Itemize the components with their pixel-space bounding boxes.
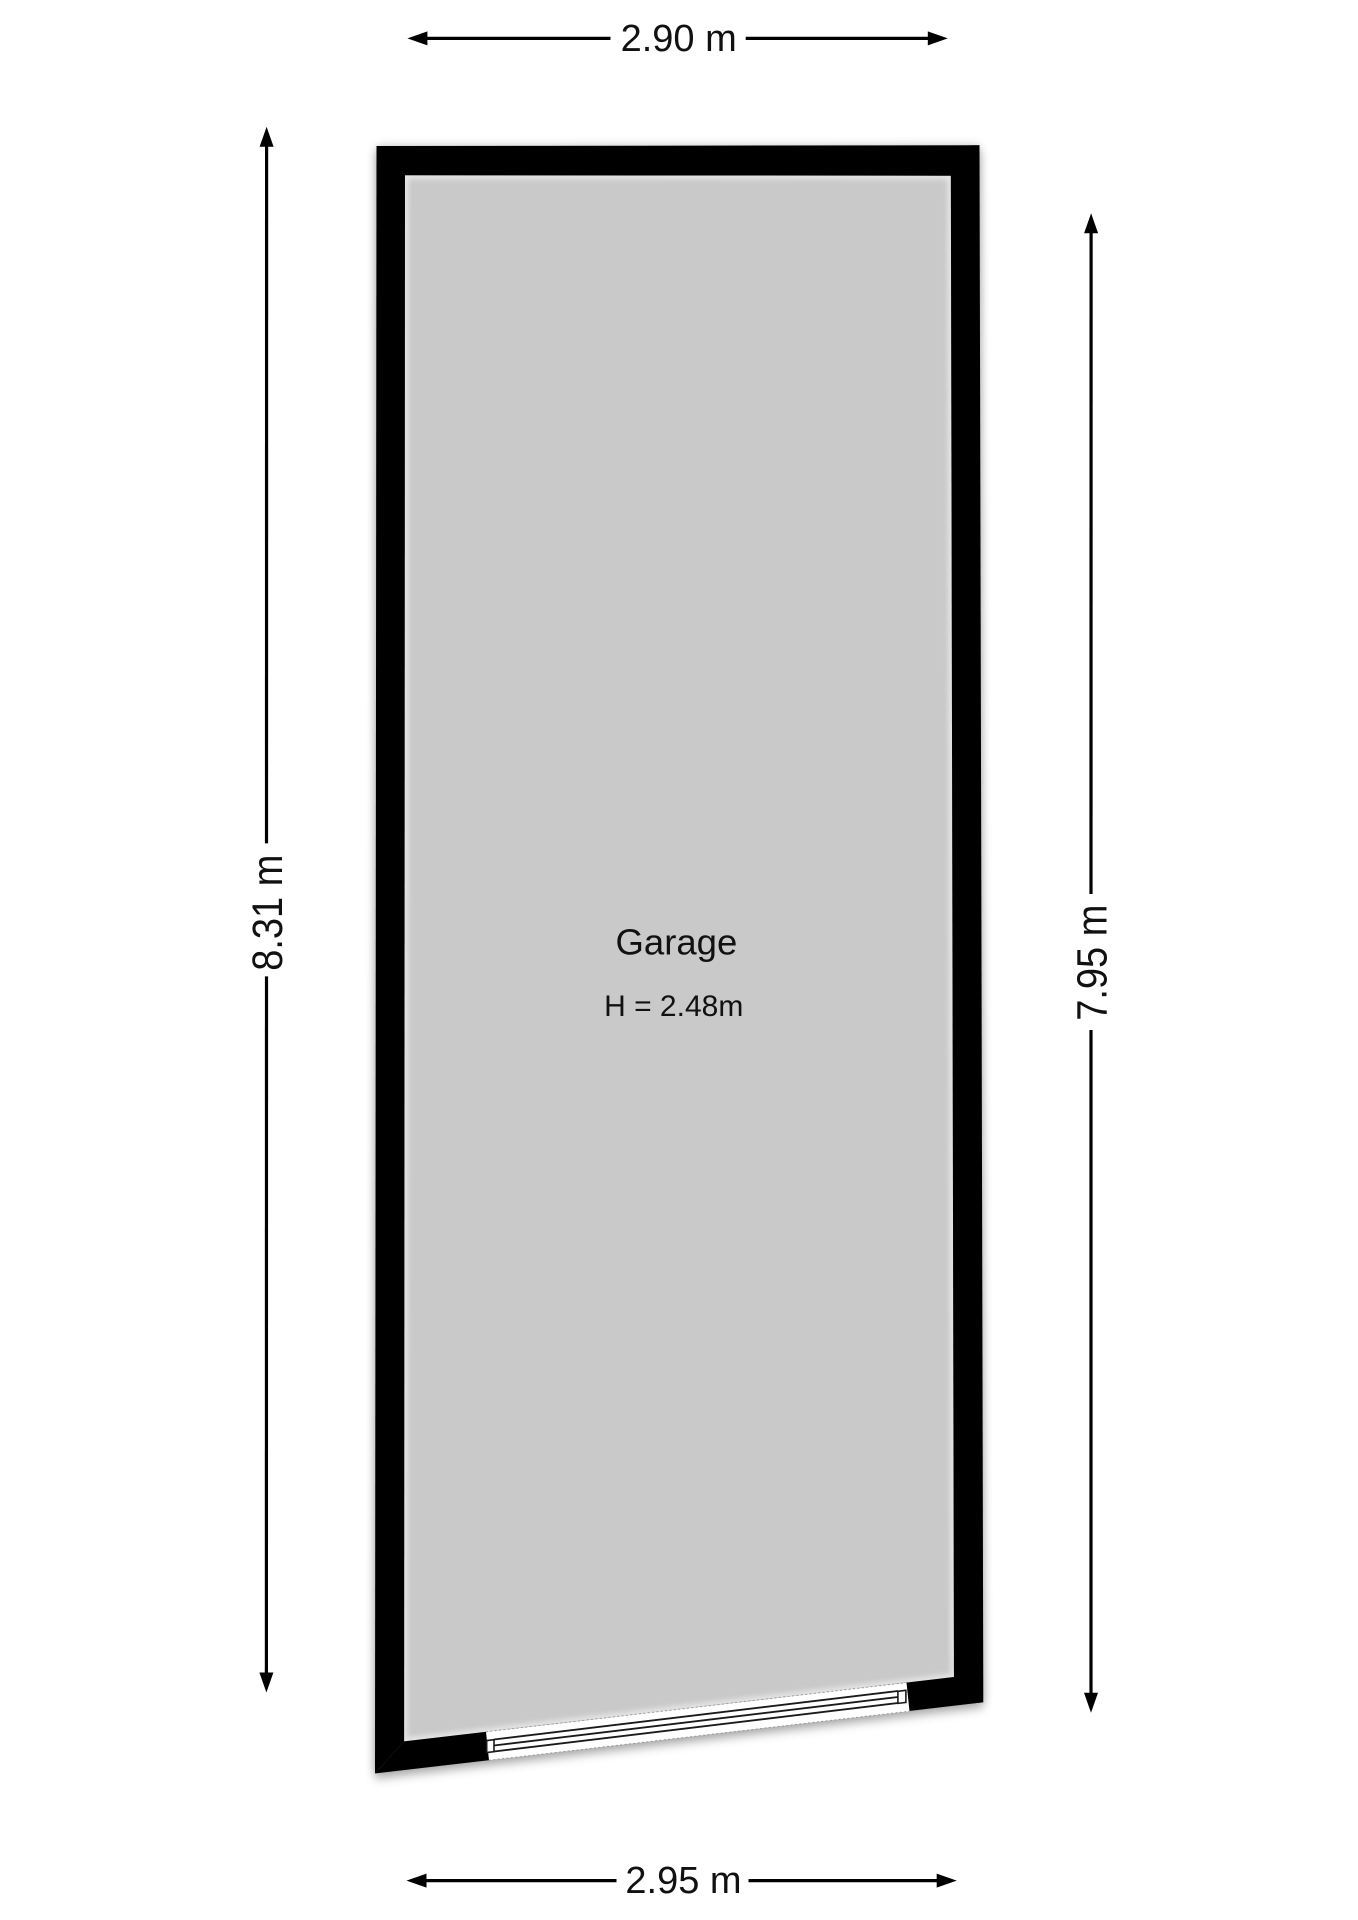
svg-text:7.95 m: 7.95 m <box>1067 905 1116 1021</box>
svg-text:2.95 m: 2.95 m <box>625 1860 741 1902</box>
svg-text:Garage: Garage <box>616 921 738 962</box>
svg-text:H = 2.48m: H = 2.48m <box>604 990 743 1023</box>
svg-text:8.31 m: 8.31 m <box>243 855 292 971</box>
svg-text:2.90 m: 2.90 m <box>621 18 737 60</box>
